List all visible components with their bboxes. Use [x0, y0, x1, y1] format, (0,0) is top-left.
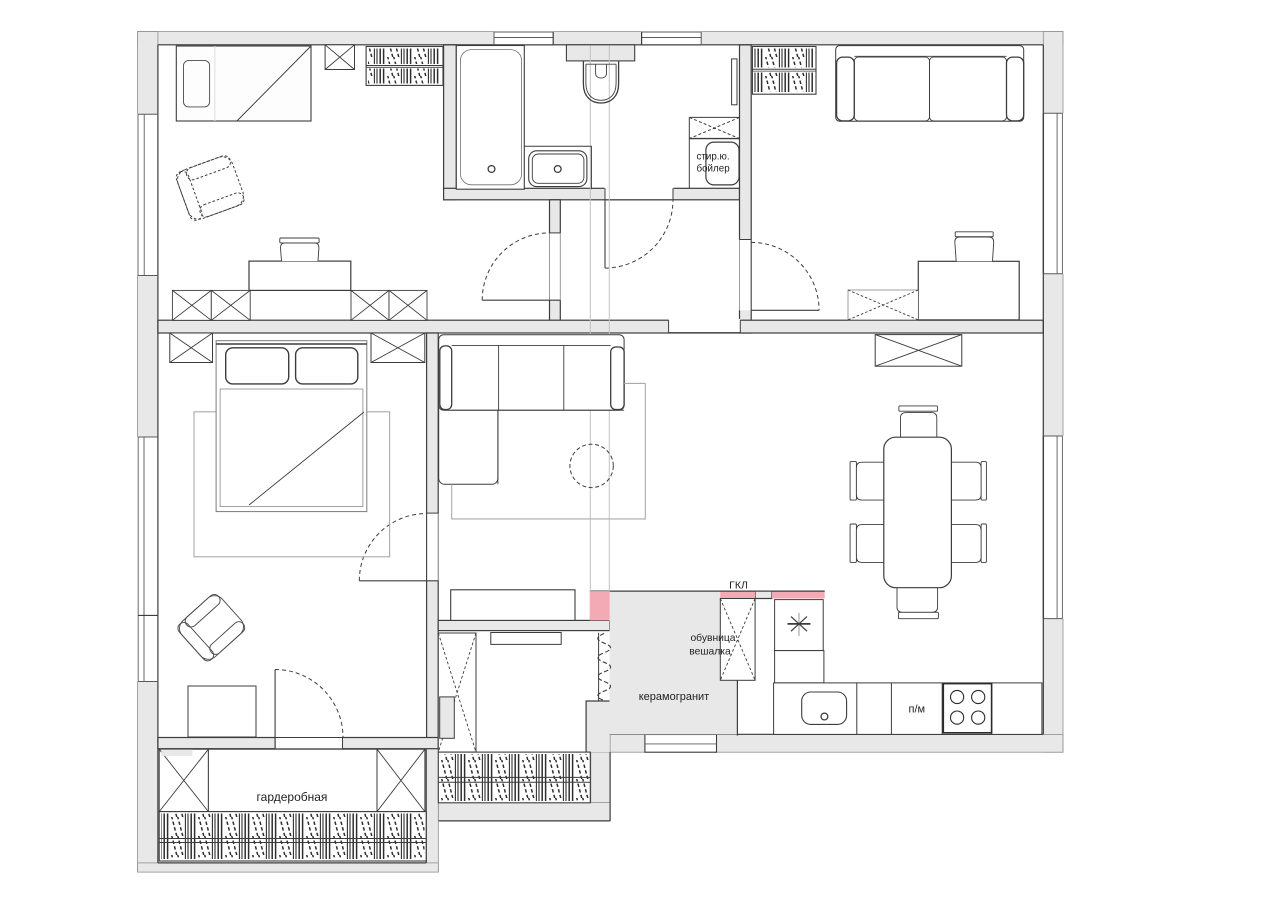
svg-text:гардеробная: гардеробная — [257, 790, 328, 804]
svg-text:п/м: п/м — [909, 704, 926, 716]
svg-text:стир.ю.: стир.ю. — [697, 152, 730, 163]
svg-text:вешалка: вешалка — [689, 647, 731, 658]
svg-text:ГКЛ: ГКЛ — [729, 580, 748, 592]
svg-text:обувница: обувница — [690, 632, 735, 644]
svg-text:керамогранит: керамогранит — [639, 691, 709, 703]
svg-text:бойлер: бойлер — [697, 164, 731, 175]
